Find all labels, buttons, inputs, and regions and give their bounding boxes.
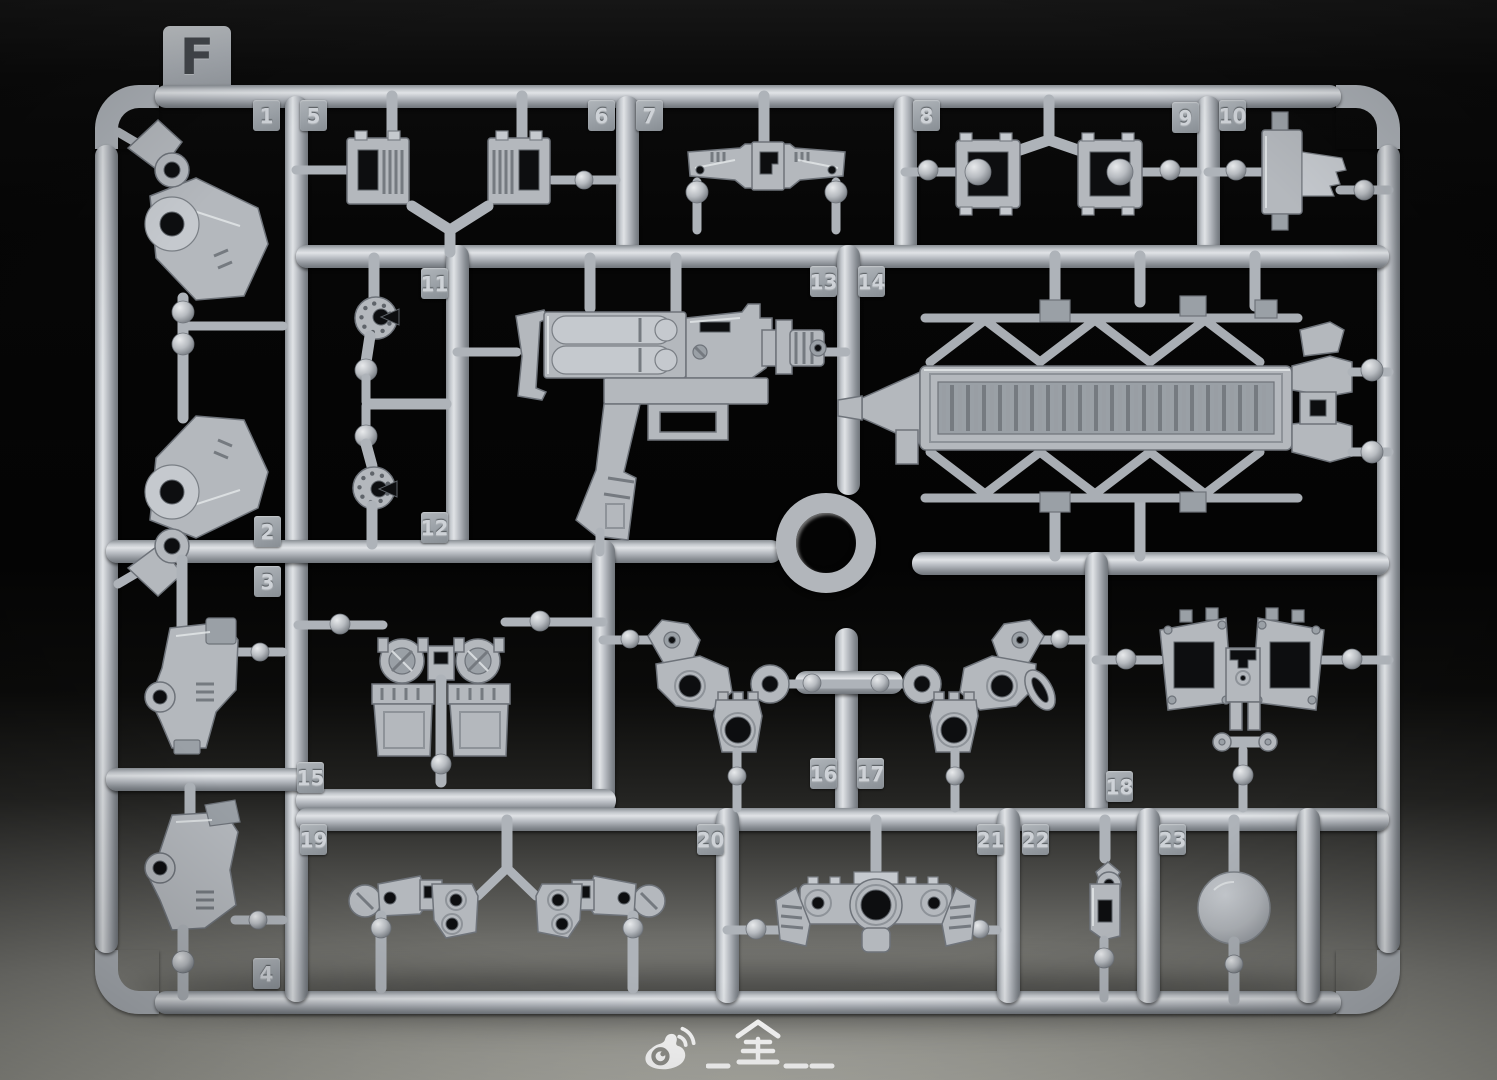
watermark-text-glyphs — [706, 1018, 842, 1072]
part-15-shape — [298, 611, 603, 782]
weibo-logo-icon — [638, 1020, 696, 1072]
part-18-shape — [1096, 608, 1389, 808]
part-tag-22: 22 — [1022, 824, 1049, 855]
part-tag-10: 10 — [1219, 100, 1246, 131]
part-tag-9: 9 — [1172, 102, 1199, 133]
part-tag-15: 15 — [297, 762, 324, 793]
part-tag-8: 8 — [913, 100, 940, 131]
part-19-20-shape — [349, 820, 665, 988]
part-tag-5: 5 — [300, 100, 327, 131]
part-tag-18: 18 — [1106, 771, 1133, 802]
part-tag-4: 4 — [253, 958, 280, 989]
part-21-shape — [727, 820, 997, 952]
part-tag-23: 23 — [1159, 824, 1186, 855]
part-7-shape — [686, 96, 847, 230]
part-tag-19: 19 — [300, 824, 327, 855]
part-1-shape — [118, 120, 283, 418]
part-tag-20: 20 — [697, 824, 724, 855]
part-tag-16: 16 — [810, 758, 837, 789]
part-12-shape — [353, 406, 397, 544]
part-tag-17: 17 — [857, 758, 884, 789]
part-tag-3: 3 — [254, 566, 281, 597]
part-2-shape — [118, 416, 268, 596]
part-14-shape — [838, 256, 1389, 556]
part-13-shape — [457, 258, 846, 552]
part-tag-6: 6 — [588, 100, 615, 131]
part-tag-13: 13 — [810, 266, 837, 297]
part-tag-7: 7 — [636, 100, 663, 131]
part-23-shape — [1198, 820, 1270, 1000]
part-8-9-shape — [905, 100, 1197, 215]
part-tag-12: 12 — [421, 512, 448, 543]
sprue-parts — [0, 0, 1497, 1080]
part-tag-11: 11 — [421, 268, 448, 299]
part-tag-2: 2 — [254, 516, 281, 547]
part-5-6-shape — [296, 96, 616, 252]
part-tag-21: 21 — [977, 824, 1004, 855]
photo-backdrop: F — [0, 0, 1497, 1080]
part-tag-1: 1 — [253, 100, 280, 131]
part-22-shape — [1090, 820, 1121, 998]
watermark: _全__ — [638, 1018, 842, 1072]
part-tag-14: 14 — [858, 266, 885, 297]
